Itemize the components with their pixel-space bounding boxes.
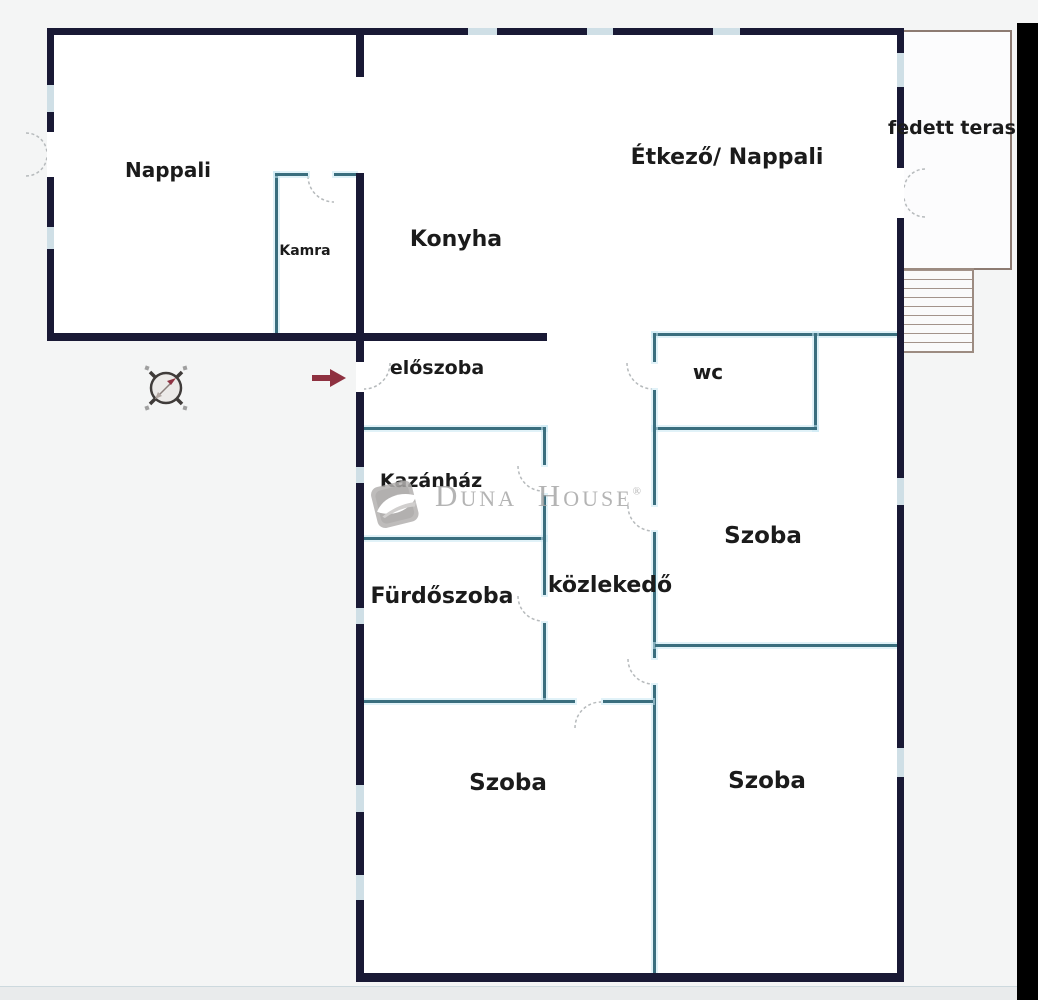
window-right-1 bbox=[897, 53, 904, 87]
wc-wall-bottom bbox=[653, 427, 817, 430]
room-label-szoba-kozep: Szoba bbox=[693, 523, 833, 549]
wall-bottom bbox=[356, 973, 904, 982]
bottom-strip bbox=[0, 986, 1038, 1000]
window-left-1 bbox=[47, 85, 54, 112]
stairs bbox=[902, 268, 974, 353]
room-label-szoba-jobb: Szoba bbox=[697, 768, 837, 794]
kamra-wall-top-a bbox=[275, 173, 308, 176]
window-west-2 bbox=[356, 608, 364, 624]
window-top-3 bbox=[713, 28, 740, 35]
interior-upper bbox=[47, 28, 904, 341]
terrace-outline bbox=[897, 30, 1012, 270]
room-label-kozlekedo: közlekedő bbox=[530, 573, 690, 598]
door-entrance bbox=[356, 362, 364, 392]
corridor-wall-a bbox=[653, 333, 656, 362]
wall-left bbox=[47, 28, 54, 341]
door-terrace bbox=[897, 168, 904, 218]
room-label-furdoszoba: Fürdőszoba bbox=[362, 584, 522, 609]
kazanhaz-furdo-divider bbox=[360, 537, 546, 540]
corridor-wall-b bbox=[653, 390, 656, 505]
room-label-wc: wc bbox=[678, 360, 738, 384]
wall-stub-top bbox=[356, 33, 364, 77]
room-label-kazanhaz: Kazánház bbox=[361, 470, 501, 492]
room-label-kamra: Kamra bbox=[270, 243, 340, 259]
window-right-2 bbox=[897, 478, 904, 505]
wall-nappali-bottom bbox=[47, 333, 547, 341]
room-label-terasz: fedett teras bbox=[888, 117, 1018, 139]
window-left-2 bbox=[47, 227, 54, 249]
wc-wall-top bbox=[653, 333, 899, 336]
szoba-divider bbox=[655, 644, 897, 647]
window-right-3 bbox=[897, 748, 904, 777]
kf-wall-right-c bbox=[543, 623, 546, 700]
door-left-french bbox=[47, 132, 54, 177]
room-label-konyha: Konyha bbox=[386, 227, 526, 252]
wall-main-vertical bbox=[356, 173, 364, 982]
kamra-wall-top-b bbox=[334, 173, 356, 176]
wc-wall-right bbox=[814, 333, 817, 430]
kazanhaz-wall-top bbox=[360, 427, 546, 430]
window-top-2 bbox=[587, 28, 613, 35]
room-label-szoba-bal: Szoba bbox=[438, 770, 578, 796]
room-label-nappali: Nappali bbox=[100, 158, 236, 182]
szoba-bal-wall-top-b bbox=[603, 700, 653, 703]
right-black-bar bbox=[1017, 23, 1038, 1000]
window-west-3 bbox=[356, 785, 364, 812]
room-label-eloszoba: előszoba bbox=[377, 357, 497, 379]
compass-icon bbox=[138, 360, 194, 416]
room-label-etkezo: Étkező/ Nappali bbox=[602, 145, 852, 170]
window-top-1 bbox=[468, 28, 497, 35]
entrance-arrow-icon bbox=[312, 368, 350, 388]
floor-plan: Nappali Kamra Konyha Étkező/ Nappali fed… bbox=[0, 0, 1038, 1000]
corridor-wall-d bbox=[653, 685, 656, 973]
szoba-bal-wall-top-a bbox=[360, 700, 575, 703]
interior-lower bbox=[356, 333, 904, 982]
kf-wall-right-a bbox=[543, 427, 546, 465]
window-west-4 bbox=[356, 875, 364, 900]
